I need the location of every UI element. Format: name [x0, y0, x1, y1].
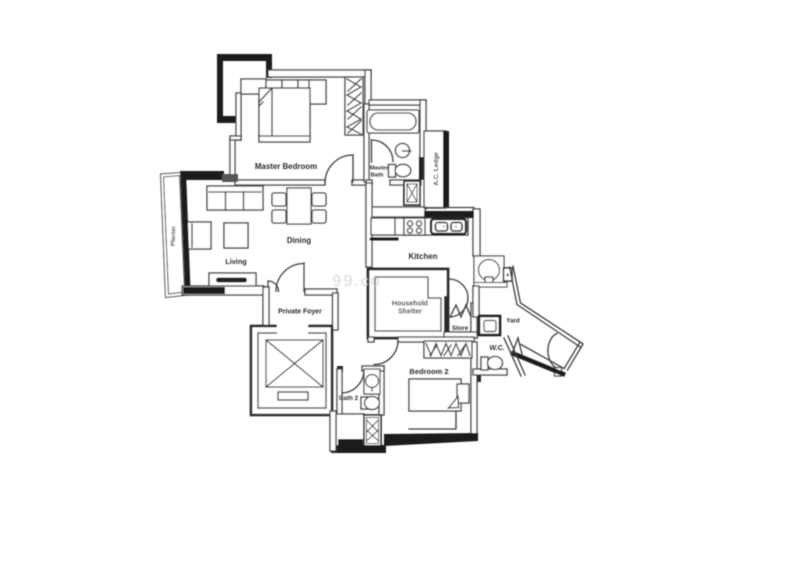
svg-text:Store: Store [452, 325, 469, 332]
svg-text:Bath: Bath [371, 173, 384, 179]
svg-text:Bath 2: Bath 2 [339, 395, 359, 402]
svg-text:Planter: Planter [171, 225, 178, 246]
svg-text:A.C. Ledge: A.C. Ledge [433, 152, 440, 186]
svg-text:Master: Master [370, 166, 389, 172]
svg-text:Master Bedroom: Master Bedroom [255, 162, 317, 171]
svg-text:Shelter: Shelter [398, 309, 422, 316]
svg-text:Household: Household [392, 301, 428, 308]
svg-text:Kitchen: Kitchen [409, 252, 438, 261]
svg-text:Private Foyer: Private Foyer [278, 309, 322, 316]
svg-text:99.co: 99.co [332, 273, 381, 290]
svg-text:Dining: Dining [287, 236, 311, 245]
svg-text:Bedroom 2: Bedroom 2 [409, 367, 448, 376]
svg-text:Living: Living [225, 257, 247, 266]
svg-text:W.C.: W.C. [489, 345, 504, 352]
svg-text:Yard: Yard [506, 318, 520, 325]
